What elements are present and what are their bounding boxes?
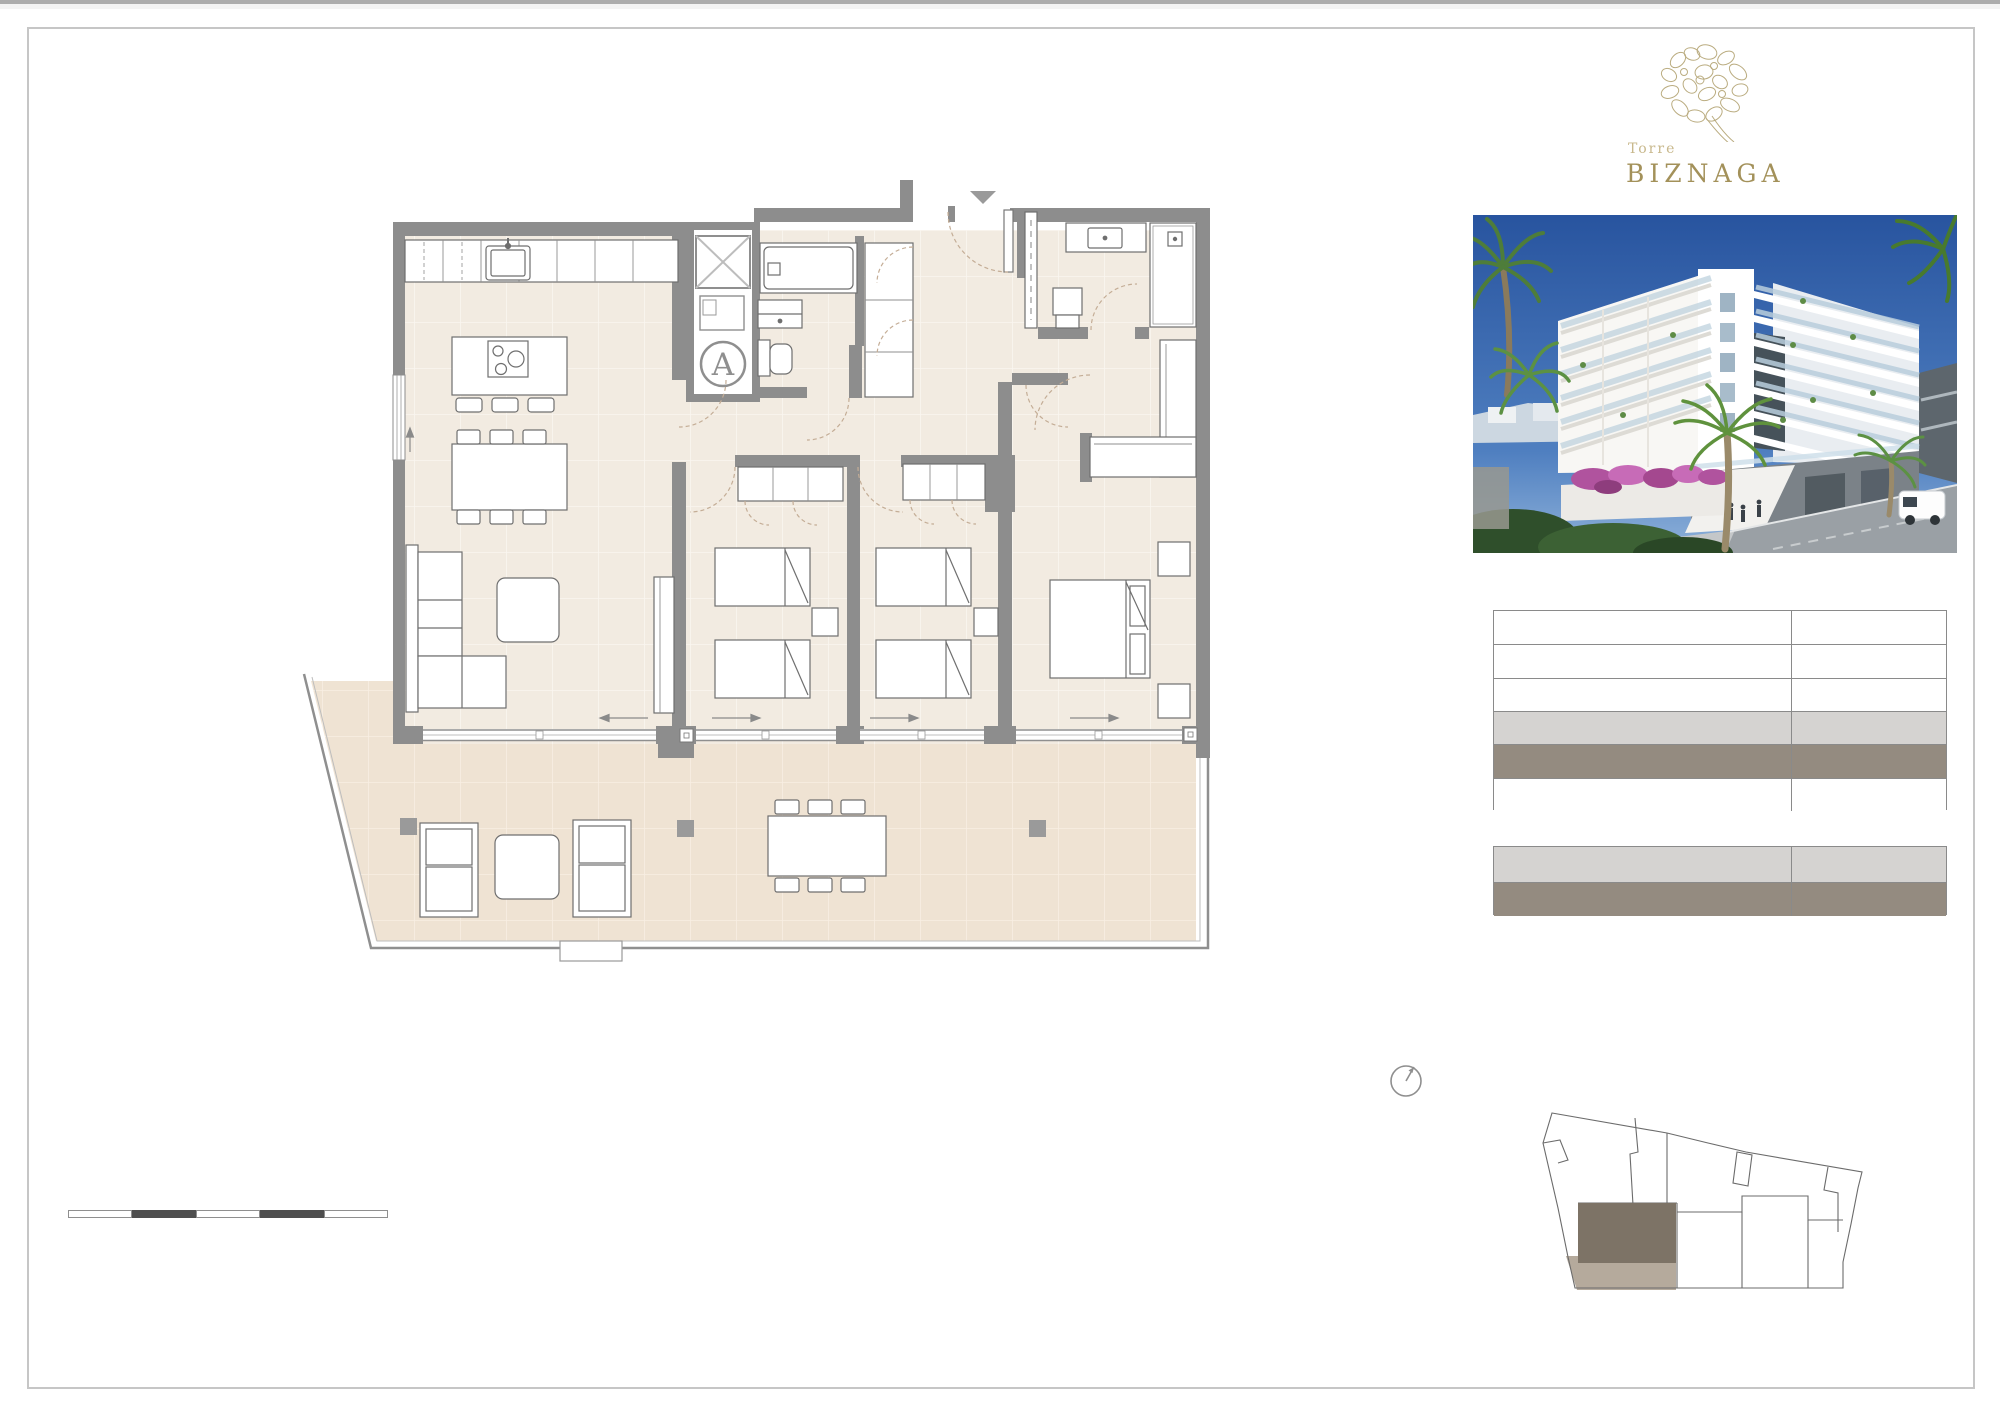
unit-label-badge: A bbox=[701, 342, 745, 386]
washbasin-2 bbox=[1066, 223, 1146, 252]
building-core: A bbox=[694, 230, 752, 394]
entry-door-leaf bbox=[1004, 210, 1013, 272]
scale-bar bbox=[68, 1206, 394, 1222]
logo-title: BIZNAGA bbox=[1626, 159, 1802, 188]
side-table bbox=[495, 835, 559, 899]
table-row bbox=[1494, 678, 1946, 711]
bathtub bbox=[760, 243, 857, 293]
elevator-x-icon bbox=[696, 236, 750, 288]
scale-segment bbox=[68, 1210, 132, 1218]
nightstand bbox=[974, 608, 998, 636]
scale-segment bbox=[196, 1210, 260, 1218]
table-row bbox=[1494, 847, 1946, 882]
twin-bed bbox=[715, 640, 810, 698]
scale-segment bbox=[324, 1210, 388, 1218]
double-bed bbox=[1050, 580, 1150, 678]
shower bbox=[1150, 223, 1196, 327]
unit-label: A bbox=[711, 347, 735, 383]
key-plan bbox=[1535, 1100, 1880, 1305]
wardrobe-1 bbox=[738, 467, 843, 501]
surface-summary-table bbox=[1493, 846, 1947, 915]
twin-bed bbox=[715, 548, 810, 606]
toilet-2 bbox=[1053, 288, 1082, 328]
floor-plan: A bbox=[290, 175, 1220, 965]
project-logo: Torre BIZNAGA bbox=[1612, 30, 1802, 200]
logo-prefix: Torre bbox=[1628, 141, 1802, 157]
window-left bbox=[393, 375, 405, 460]
page-top-edge-shadow bbox=[0, 4, 2000, 9]
wardrobe-2 bbox=[903, 464, 985, 500]
key-plan-unit-highlight bbox=[1578, 1203, 1676, 1263]
sliding-doors bbox=[423, 728, 1197, 742]
biznaga-flower-icon bbox=[1612, 30, 1802, 142]
coffee-table bbox=[497, 578, 559, 642]
unit-info-table bbox=[1493, 610, 1947, 810]
scale-segment bbox=[132, 1210, 196, 1218]
kitchen-island bbox=[452, 337, 567, 412]
lounge-chair bbox=[573, 820, 631, 917]
dining-table bbox=[452, 430, 567, 524]
table-row bbox=[1494, 711, 1946, 744]
table-row bbox=[1494, 644, 1946, 677]
terrace-step bbox=[560, 941, 622, 961]
bougainvillea-wall bbox=[1561, 465, 1731, 521]
twin-bed bbox=[876, 548, 971, 606]
kitchen-counter bbox=[405, 238, 678, 282]
twin-bed bbox=[876, 640, 971, 698]
table-row bbox=[1494, 744, 1946, 777]
building-render-photo bbox=[1473, 215, 1957, 553]
table-row bbox=[1494, 611, 1946, 644]
table-row bbox=[1494, 778, 1946, 811]
table-row bbox=[1494, 882, 1946, 917]
living-shelf bbox=[654, 577, 674, 713]
pocket-door bbox=[1025, 212, 1037, 328]
lounge-chair bbox=[420, 823, 478, 917]
scale-segment bbox=[260, 1210, 324, 1218]
nightstand bbox=[1158, 542, 1190, 576]
entry-closet bbox=[865, 243, 913, 397]
toilet bbox=[758, 340, 792, 376]
entrance-triangle-icon bbox=[970, 191, 996, 204]
washbasin bbox=[758, 300, 802, 328]
nightstand bbox=[1158, 684, 1190, 718]
north-arrow-icon bbox=[1386, 1061, 1426, 1101]
nightstand bbox=[812, 608, 838, 636]
plan-sheet: Torre BIZNAGA bbox=[0, 0, 2000, 1414]
